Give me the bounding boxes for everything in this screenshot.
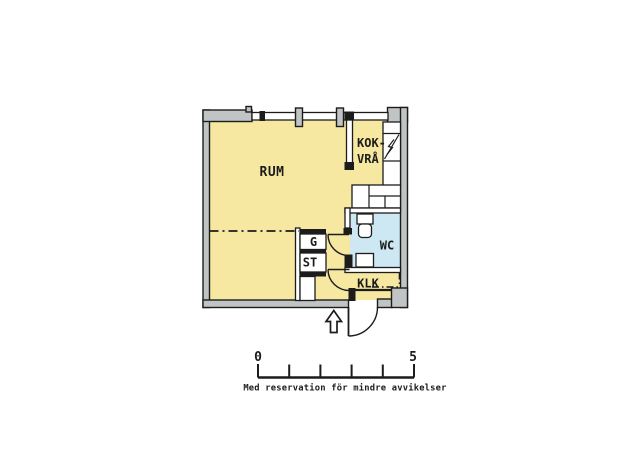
wc-wall-top (345, 208, 401, 213)
kitchen-counter-right-column (383, 122, 401, 186)
klk-wall-stub (349, 288, 356, 301)
closet-lower-column (300, 277, 315, 301)
kokvra-label-line2: VRÅ (357, 151, 379, 166)
klk-label: KLK (357, 277, 379, 291)
wall-top-notch (246, 107, 252, 113)
toilet-bowl-fixture (359, 224, 372, 238)
scale-label-0: 0 (254, 350, 262, 365)
sink-fixture (356, 254, 374, 268)
wall-top-left-block (203, 110, 252, 122)
wall-bottom (203, 300, 349, 308)
window-post-1 (296, 108, 303, 127)
partition-rum-kokvra (345, 112, 355, 171)
wall-left (203, 110, 210, 308)
wall-right (401, 108, 408, 308)
partition-cap-top (345, 112, 355, 120)
floorplan-drawing: RUM KOK- VRÅ WC KLK G ST 0 5 Med reserva… (0, 0, 625, 460)
cleaning-closet-st-label: ST (303, 256, 317, 270)
closet-wall-stub (296, 228, 301, 301)
scale-bar: 0 5 (254, 350, 417, 378)
door-swing-entrance (349, 307, 378, 336)
disclaimer-text: Med reservation för mindre avvikelser (243, 383, 446, 394)
wc-label: WC (380, 239, 394, 253)
toilet-tank-fixture (357, 214, 373, 224)
scale-label-5: 5 (409, 350, 417, 365)
entrance-arrow-icon (326, 311, 342, 333)
wall-bottom-right-segment (378, 299, 393, 308)
closet-bottom-bar (300, 272, 326, 277)
wc-wall-left-upper (345, 208, 350, 228)
closet-top-bar (300, 229, 326, 234)
wardrobe-g-label: G (310, 235, 317, 249)
window-glass-line (252, 113, 388, 121)
partition-wall (347, 120, 353, 164)
kokvra-label-line1: KOK- (357, 136, 386, 150)
wall-bottom-right-block (392, 288, 408, 308)
window-mullion-tick (260, 111, 266, 121)
wc-wall-left-lower (345, 255, 353, 269)
floorplan-page: RUM KOK- VRÅ WC KLK G ST 0 5 Med reserva… (0, 0, 625, 460)
rum-label: RUM (260, 165, 285, 180)
window-post-2 (337, 108, 344, 127)
partition-cap-bottom (345, 162, 355, 170)
wc-wall-cap (344, 228, 353, 235)
wc-klk-wall (345, 268, 401, 273)
